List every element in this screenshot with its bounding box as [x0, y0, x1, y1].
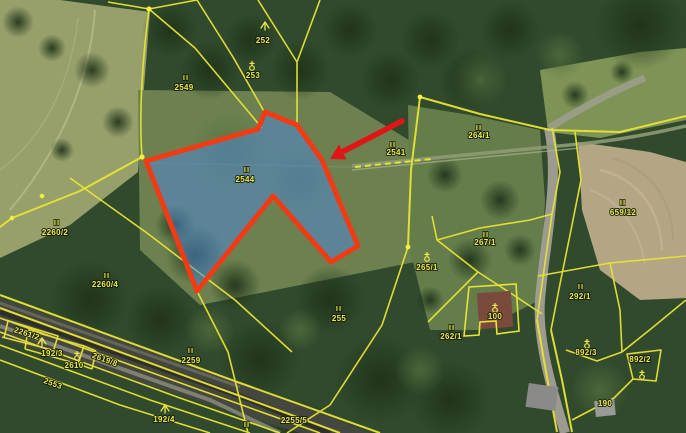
- parcel-number: 253: [246, 71, 260, 80]
- meadow-symbol-icon: II: [578, 282, 584, 291]
- meadow-symbol-icon: II: [244, 420, 250, 429]
- parcel-number: 267/1: [474, 238, 496, 247]
- meadow-symbol-icon: II: [244, 165, 250, 174]
- parcel-number: 262/1: [440, 332, 462, 341]
- meadow-symbol-icon: II: [449, 323, 455, 332]
- meadow-symbol-icon: II: [104, 271, 110, 280]
- meadow-symbol-icon: II: [54, 218, 60, 227]
- parcel-number: 2259: [182, 356, 201, 365]
- parcel-number: 265/1: [416, 263, 438, 272]
- parcel-number: 2260/4: [92, 280, 119, 289]
- parcel-number: 255: [332, 314, 346, 323]
- parcel-number: 292/1: [569, 292, 591, 301]
- parcel-number: 2260/2: [42, 228, 69, 237]
- map-svg: 252253II2549II2544II2541II264/1II2260/2I…: [0, 0, 686, 433]
- parcel-number: 892/2: [629, 355, 651, 364]
- parcel-number: 2549: [175, 83, 194, 92]
- meadow-symbol-icon: II: [620, 198, 626, 207]
- parcel-number: 2541: [387, 148, 406, 157]
- parcel-number: 192/4: [153, 415, 175, 424]
- parcel-number: 2544: [236, 175, 255, 184]
- parcel-number: 2610: [65, 361, 84, 370]
- meadow-symbol-icon: II: [188, 346, 194, 355]
- parcel-number: 100: [488, 312, 502, 321]
- parcel-number: 192/3: [41, 349, 63, 358]
- parcel-number: 2255/5: [281, 416, 308, 425]
- cadastral-map-canvas[interactable]: 252253II2549II2544II2541II264/1II2260/2I…: [0, 0, 686, 433]
- parcel-number: 264/1: [468, 131, 490, 140]
- meadow-symbol-icon: II: [183, 73, 189, 82]
- parcel-number: 252: [256, 36, 270, 45]
- parcel-label: 190: [598, 399, 612, 408]
- parcel-number: 190: [598, 399, 612, 408]
- meadow-symbol-icon: II: [336, 304, 342, 313]
- parcel-number: 892/3: [575, 348, 597, 357]
- parcel-number: 659/12: [610, 208, 637, 217]
